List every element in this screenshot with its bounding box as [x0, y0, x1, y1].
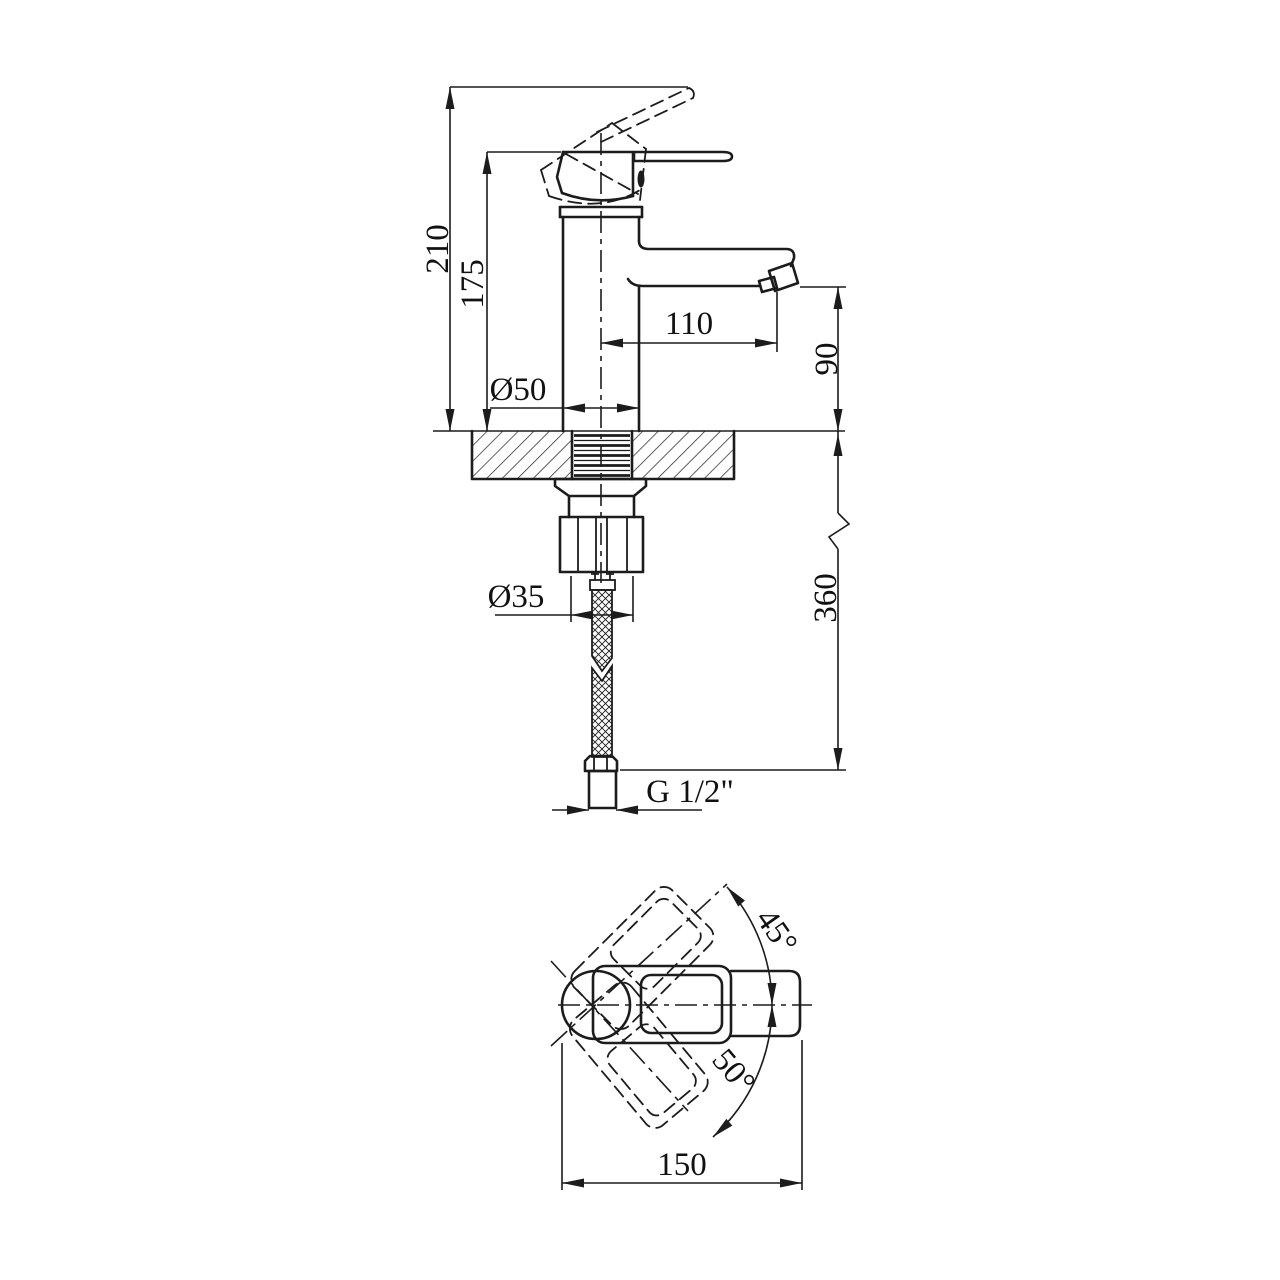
flex-hose-upper: [592, 590, 612, 671]
handle-body: [557, 152, 633, 200]
dim-110-label: 110: [665, 306, 713, 342]
dim-g12: G 1/2": [552, 774, 734, 815]
dim-o35-label: Ø35: [488, 579, 545, 615]
countertop-section: [433, 431, 845, 479]
flex-hose-lower: [592, 666, 612, 757]
dim-o50-label: Ø50: [490, 372, 547, 408]
dim-90: 90: [800, 287, 846, 431]
spout-stub-plan: [731, 971, 800, 1036]
dim-150-label: 150: [657, 1147, 707, 1183]
dim-150: 150: [562, 1040, 802, 1190]
swing-arcs: 45° 50°: [705, 884, 805, 1140]
handle-raised-position-dashed: [541, 88, 694, 204]
faucet-drawing-canvas: 210 175 110 90 Ø50: [0, 0, 1280, 1280]
threaded-shank: [574, 436, 630, 476]
dim-50-label: 50°: [705, 1042, 762, 1101]
side-view: 210 175 110 90 Ø50: [420, 87, 849, 815]
dim-g12-label: G 1/2": [646, 774, 734, 810]
dim-360: 360: [620, 431, 849, 770]
dim-210-label: 210: [420, 224, 456, 274]
dim-45-label: 45°: [748, 902, 804, 960]
technical-drawing-page: 210 175 110 90 Ø50: [0, 0, 1280, 1280]
dim-175-label: 175: [455, 259, 491, 309]
top-view: 45° 50° 150: [551, 882, 812, 1190]
dim-90-label: 90: [809, 343, 845, 376]
spout: [628, 241, 798, 292]
dim-210: 210: [420, 87, 688, 431]
hose-end-fitting: [585, 756, 617, 808]
dim-110: 110: [601, 292, 777, 352]
hose-connector: [590, 572, 615, 590]
handle-lever: [634, 152, 732, 161]
dim-360-label: 360: [808, 573, 844, 623]
